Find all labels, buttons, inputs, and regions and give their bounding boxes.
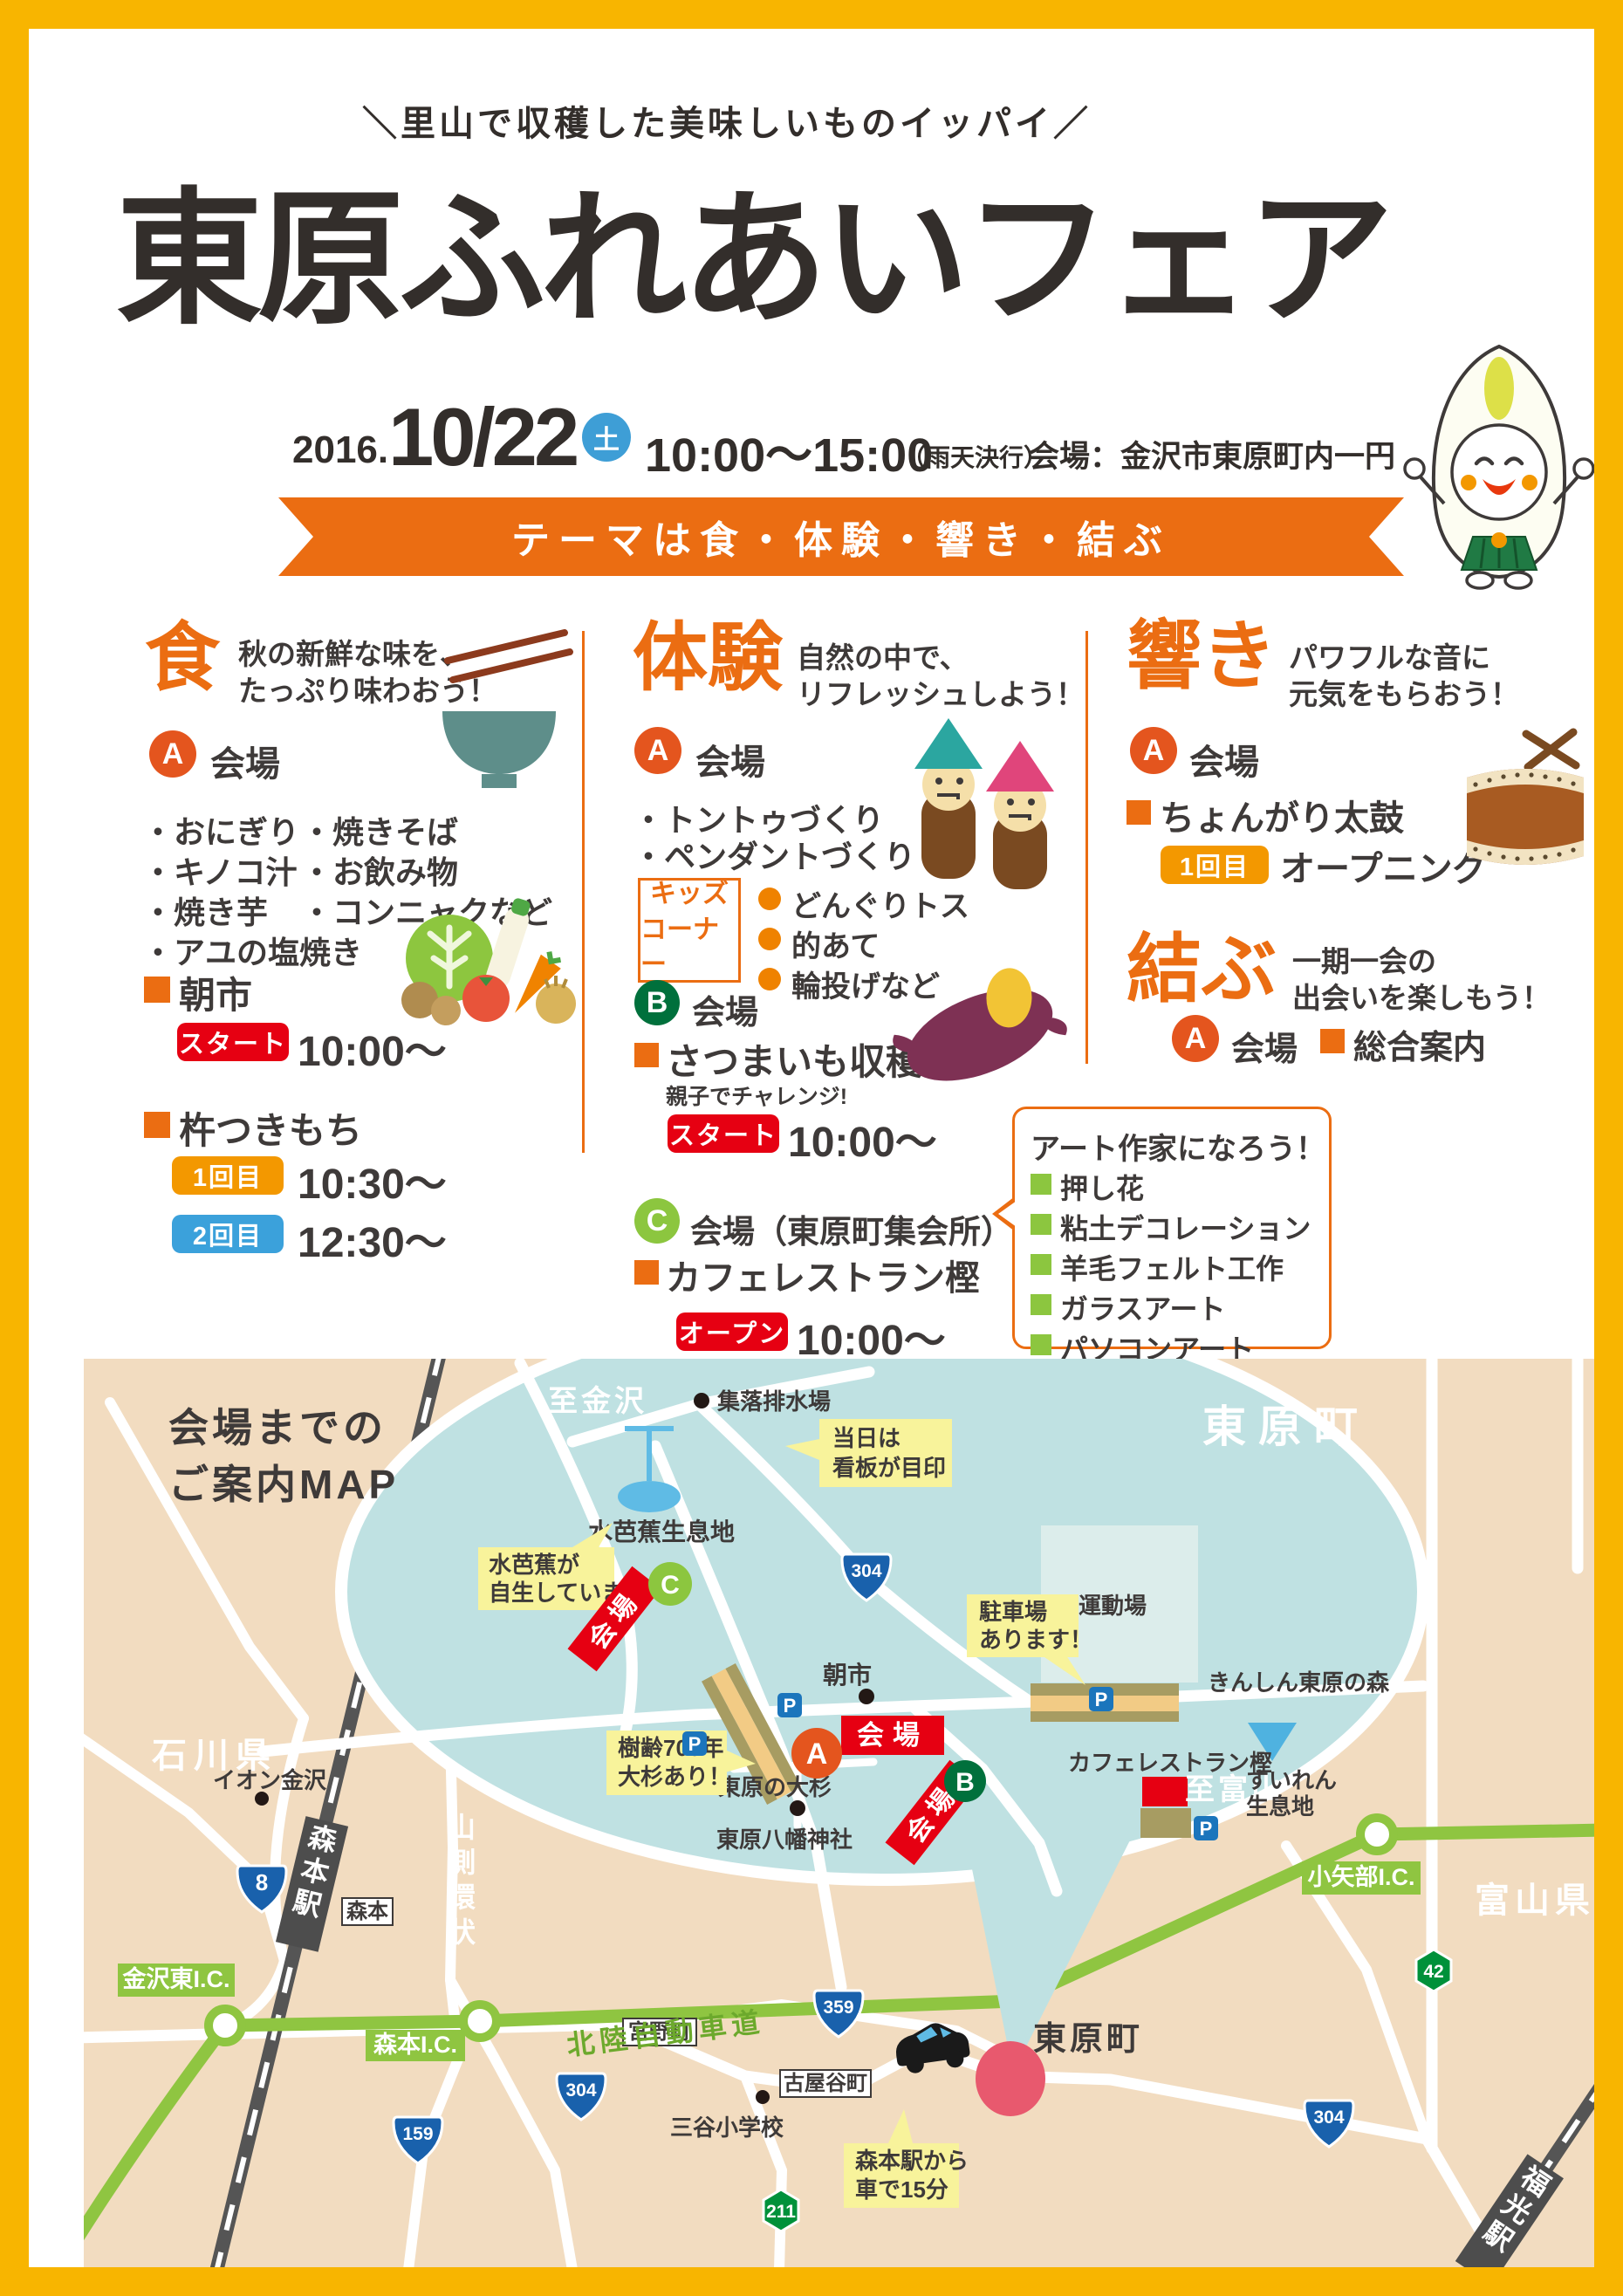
ic-oyabe: 小矢部I.C. [1302,1861,1421,1895]
svg-text:P: P [1095,1689,1108,1710]
svg-text:森本I.C.: 森本I.C. [373,2032,457,2058]
svg-text:8: 8 [256,1869,268,1895]
label-mizubasho-habitat: 水芭蕉生息地 [588,1518,735,1546]
taiko-drum-illustration [1441,723,1611,889]
round2-badge: 2回目 [172,1215,284,1253]
svg-text:A: A [806,1737,828,1771]
ic-kanazawa-higashi: 金沢東I.C. [118,1964,235,1997]
venue-line: 会場：金沢市東原町内一円 [1029,432,1395,476]
connect-subtitle-1: 一期一会の [1292,943,1436,980]
map-title-line2: ご案内MAP [168,1462,399,1507]
sweet-potato-illustration [888,961,1072,1100]
label-higashihara-big: 東原町 [1202,1402,1370,1451]
column-divider-right [1085,631,1088,1064]
venue-a-badge: A [634,727,681,774]
bowl-chopsticks-icon [432,627,576,795]
cafe-time: 10:00〜 [797,1306,946,1367]
venue-a-label: 会場 [1189,734,1259,785]
mascot-illustration [1390,339,1608,594]
taiko-label: ちょんがり太鼓 [1160,790,1404,840]
cafe-block [1142,1777,1188,1806]
round1-badge: 1回目 [172,1156,284,1195]
theme-banner: テーマは食・体験・響き・結ぶ [278,497,1404,576]
svg-text:駐車場: 駐車場 [979,1599,1047,1625]
sound-subtitle-2: 元気をもらおう！ [1289,676,1519,713]
svg-text:あります！: あります！ [979,1627,1092,1653]
venue-c-badge: C [634,1198,680,1244]
svg-text:森本駅から: 森本駅から [855,2148,969,2174]
art-box-title: アート作家になろう！ [1031,1125,1325,1168]
label-toyama: 富山県 [1475,1881,1595,1920]
route-shield-211: 211 [764,2190,798,2231]
label-kinshin: きんしん東原の森 [1208,1669,1390,1696]
asaichi-label: 朝市 [179,966,252,1019]
label-drainage: 集落排水場 [716,1388,831,1415]
label-suiren-1: すいれん [1246,1767,1337,1793]
theme-banner-text: テーマは食・体験・響き・結ぶ [511,509,1171,565]
mochi-round2-time: 12:30〜 [298,1208,447,1269]
kids-corner-line2: コーナー [640,913,738,984]
menu-item: ・おにぎり [142,807,299,853]
ic-morimoto: 森本I.C. [366,2030,465,2061]
menu-item: ・お飲み物 [301,847,458,893]
section-title-sound: 響き [1127,619,1277,694]
svg-text:359: 359 [823,1998,853,2018]
route-shield-42: 42 [1416,1950,1451,1991]
svg-text:B: B [955,1768,975,1797]
sound-subtitle-1: パワフルな音に [1289,640,1490,676]
access-map: 会場までの ご案内MAP 石川県 富山県 至金沢 至富山 東原町 東原町 集落排… [84,1359,1597,2270]
venue-a-label: 会場 [1231,1022,1298,1070]
menu-item: ・焼きそば [301,807,458,853]
mascot-face [1452,425,1546,519]
venue-a-badge: A [1172,1015,1219,1062]
bullet-dot [758,888,781,910]
svg-text:304: 304 [851,1561,881,1581]
label-jinja: 東原八幡神社 [716,1827,853,1853]
svg-text:P: P [1200,1818,1213,1840]
bullet-square [144,1112,170,1138]
section-title-connect: 結ぶ [1127,932,1277,1007]
bullet-square [1127,800,1151,825]
venue-b-label: 会場 [692,985,758,1033]
art-item: ガラスアート [1060,1287,1225,1327]
bullet-square [634,1260,659,1285]
mochi-label: 杵つきもち [179,1101,362,1155]
label-asaichi: 朝市 [823,1661,872,1689]
event-title: 東原ふれあいフェア [116,141,1338,353]
label-aeon: イオン金沢 [213,1767,327,1793]
spadix [1484,357,1514,420]
svg-text:車で15分: 車で15分 [855,2176,948,2203]
experience-item: ・ペンダントづくり [633,832,915,877]
rain-note: （雨天決行） [901,439,1048,474]
column-divider-left [582,631,585,1153]
menu-item: ・焼き芋 [142,888,268,933]
svg-text:古屋谷町: 古屋谷町 [784,2072,867,2095]
venue-a-badge: A [149,730,196,778]
bullet-square [144,977,170,1003]
tagline: ＼里山で収穫した美味しいものイッパイ／ [203,95,1250,146]
art-workshop-box: アート作家になろう！ 押し花 粘土デコレーション 羊毛フェルト工作 ガラスアート… [1012,1107,1332,1349]
vegetables-illustration [395,888,579,1032]
svg-text:大杉あり！: 大杉あり！ [618,1764,731,1790]
svg-text:森本: 森本 [346,1900,388,1923]
venue-a-badge: A [1130,727,1177,774]
menu-item: ・キノコ汁 [142,847,297,893]
experience-subtitle-2: リフレッシュしよう！ [797,676,1085,713]
start-badge: スタート [177,1023,289,1061]
open-badge: オープン [676,1312,788,1351]
asaichi-time: 10:00〜 [298,1017,447,1078]
svg-text:304: 304 [1313,2108,1344,2128]
svg-text:水芭蕉が: 水芭蕉が [489,1552,579,1578]
imo-note: 親子でチャレンジ! [666,1079,847,1111]
svg-text:P: P [784,1695,797,1717]
svg-text:当日は: 当日は [832,1425,901,1451]
weekday-badge: 土 [582,413,631,462]
imo-label: さつまいも収穫 [666,1032,922,1086]
cafe-label: カフェレストラン樫 [666,1250,980,1300]
svg-text:金沢東I.C.: 金沢東I.C. [121,1965,229,1992]
map-title-line1: 会場までの [168,1405,387,1450]
label-box-morimoto: 森本 [342,1898,393,1925]
venue-a-label: 会場 [695,734,765,785]
svg-text:樹齢700年: 樹齢700年 [618,1735,723,1761]
experience-subtitle-1: 自然の中で、 [797,640,969,676]
label-undojo: 運動場 [1079,1593,1147,1619]
imo-time: 10:00〜 [788,1107,937,1169]
art-item: 押し花 [1060,1167,1144,1207]
start-badge: スタート [668,1114,779,1153]
date-day: 10/22 [388,390,576,484]
svg-text:看板が目印: 看板が目印 [832,1455,946,1481]
kids-item: どんぐりトス [791,882,969,925]
event-flyer: ＼里山で収穫した美味しいものイッパイ／ 東原ふれあいフェア 2016. 10/2… [0,0,1623,2296]
event-time: 10:00〜15:00 [645,416,933,485]
round1-badge: 1回目 [1161,846,1269,884]
info-desk-label: 総合案内 [1353,1020,1486,1068]
section-title-experience: 体験 [633,620,783,696]
bullet-square [634,1043,659,1067]
svg-text:P: P [688,1733,702,1755]
svg-text:159: 159 [402,2124,433,2144]
venue-b-badge: B [634,980,680,1025]
label-suiren-2: 生息地 [1246,1793,1314,1820]
svg-text:211: 211 [766,2202,796,2222]
svg-text:304: 304 [565,2080,596,2101]
label-higashihara-small: 東原町 [1033,2021,1143,2058]
label-box-furuyadani: 古屋谷町 [780,2070,871,2097]
art-item: 羊毛フェルト工作 [1060,1247,1284,1287]
svg-text:会場: 会場 [857,1720,928,1751]
svg-text:42: 42 [1423,1962,1443,1982]
label-mitani: 三谷小学校 [670,2114,784,2141]
kids-corner-box: キッズ コーナー [638,878,741,983]
bullet-dot [758,968,781,990]
mochi-round1-time: 10:30〜 [298,1149,447,1210]
connect-subtitle-2: 出会いを楽しもう！ [1292,980,1551,1017]
venue-c-label: 会場（東原町集会所） [690,1205,1013,1252]
label-cafe: カフェレストラン樫 [1068,1750,1272,1776]
section-title-food: 食 [145,620,220,696]
bullet-dot [758,928,781,950]
bullet-square [1320,1029,1345,1053]
date-year: 2016. [292,428,388,472]
venue-a-label: 会場 [210,736,280,786]
label-to-kanazawa: 至金沢 [548,1384,647,1418]
tonttu-illustration [906,715,1067,889]
svg-text:小矢部I.C.: 小矢部I.C. [1307,1863,1414,1890]
art-item: 粘土デコレーション [1060,1207,1311,1247]
kids-item: 的あて [791,922,880,965]
kids-corner-line1: キッズ [650,877,729,913]
svg-text:C: C [661,1571,680,1600]
